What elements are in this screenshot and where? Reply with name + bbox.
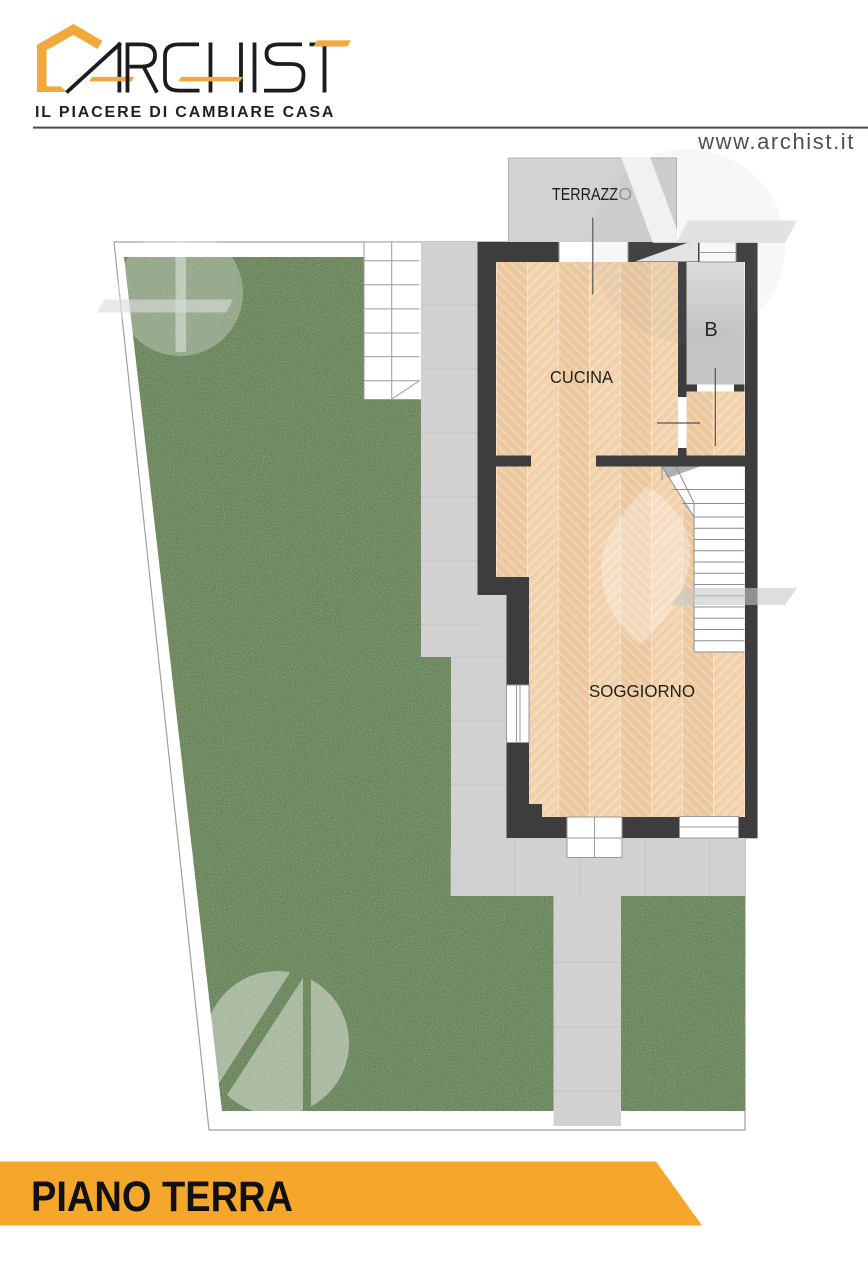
svg-text:PIANO TERRA: PIANO TERRA (31, 1173, 293, 1221)
svg-text:www.archist.it: www.archist.it (697, 129, 855, 154)
svg-text:CUCINA: CUCINA (550, 367, 613, 387)
svg-text:IL PIACERE DI CAMBIARE CASA: IL PIACERE DI CAMBIARE CASA (35, 104, 335, 121)
svg-text:SOGGIORNO: SOGGIORNO (589, 681, 695, 701)
